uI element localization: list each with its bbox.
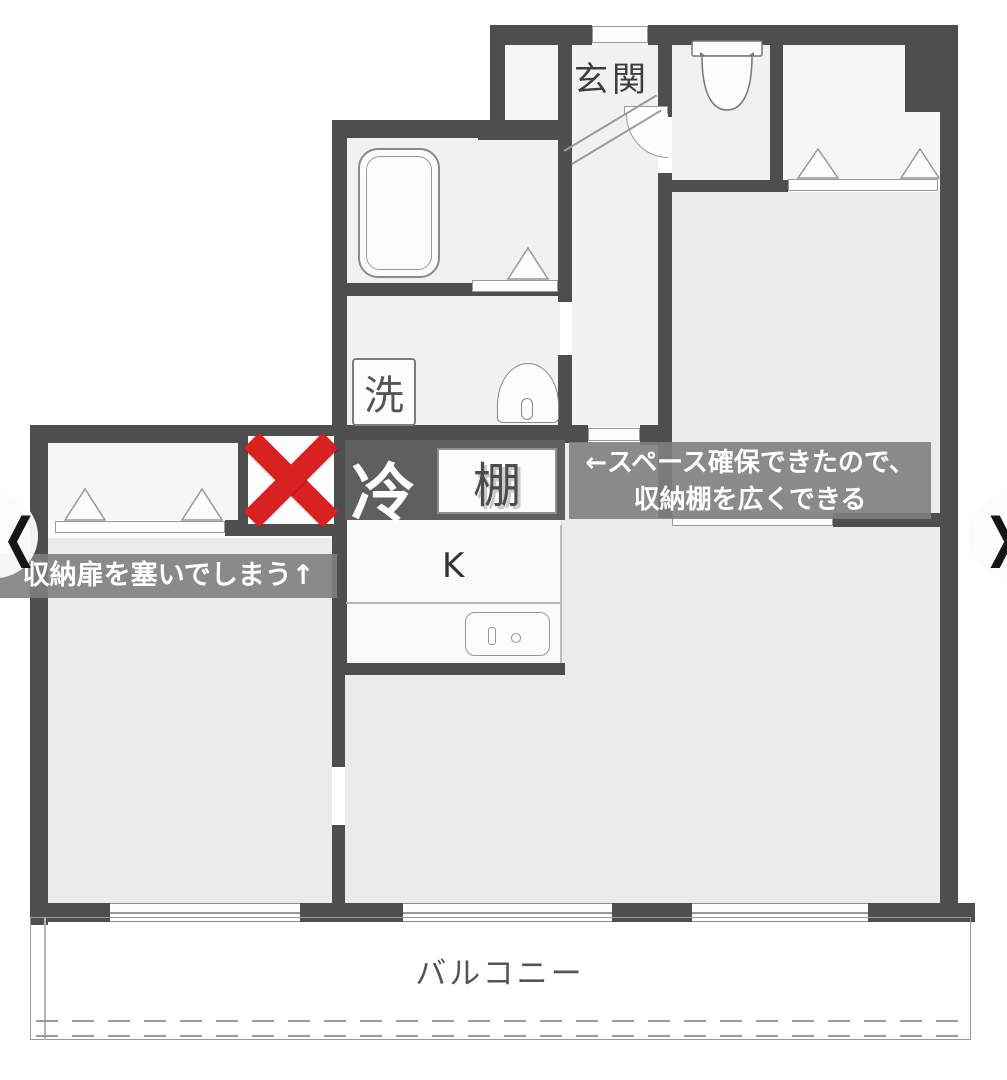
genkan-label: 玄関 — [574, 52, 650, 101]
kitchen-counter-line — [346, 602, 560, 604]
kitchen-edge-line — [560, 525, 562, 663]
fridge-label: 冷 — [351, 443, 415, 535]
balcony-label: バルコニー — [330, 948, 670, 993]
balcony-dashed-line — [36, 1020, 964, 1022]
x-mark-icon — [248, 436, 334, 524]
wall-segment — [558, 355, 572, 427]
shelf-label: 棚 — [473, 446, 521, 516]
wall-segment — [332, 825, 345, 903]
wall-segment — [770, 45, 783, 192]
fridge-box: 冷 棚 — [345, 440, 565, 520]
kitchen-sink-icon — [465, 612, 550, 656]
toilet-icon — [688, 38, 768, 116]
wall-segment — [332, 663, 565, 675]
shelf-box: 棚 — [437, 448, 557, 514]
balcony-dashed-line — [36, 1035, 964, 1037]
left-annotation: 収納扉を塞いでしまう↑ — [0, 554, 337, 598]
hall-door-track — [588, 428, 640, 441]
right-annotation-line2: 収納棚を広くできる — [569, 482, 931, 519]
next-arrow-button[interactable]: ❯ — [984, 512, 1007, 565]
entry-side-closet-floor — [505, 42, 558, 128]
door-swing-triangle — [506, 246, 550, 281]
wall-segment — [558, 140, 572, 302]
right-closet-door-track — [788, 179, 938, 191]
door-swing-triangle — [796, 147, 840, 180]
bathtub-icon — [358, 148, 440, 278]
wall-segment — [658, 180, 770, 192]
door-swing-triangle — [180, 487, 224, 522]
kitchen-label: K — [442, 546, 464, 586]
right-annotation-line1: ←スペース確保できたので、 — [569, 445, 931, 482]
wall-segment — [490, 25, 592, 45]
right-annotation: ←スペース確保できたので、 収納棚を広くできる — [569, 442, 931, 519]
floorplan-viewer: 洗 冷 棚 玄関 K バルコニー 収納扉を塞いでしまう↑ ←スペース確保できたの… — [0, 0, 1007, 1080]
washer-box: 洗 — [352, 358, 416, 426]
prev-arrow-button[interactable]: ❮ — [2, 512, 37, 565]
bath-door-track — [472, 280, 558, 292]
door-swing-triangle — [63, 487, 107, 522]
left-annotation-text: 収納扉を塞いでしまう↑ — [23, 560, 315, 591]
left-closet-door-track — [55, 521, 225, 533]
wall-left-outer — [30, 425, 48, 925]
kitchen-knob — [511, 633, 521, 643]
wall-segment — [332, 675, 345, 767]
front-door — [592, 26, 648, 43]
sink-faucet — [521, 398, 533, 420]
kitchen-faucet — [488, 627, 496, 645]
washer-label: 洗 — [364, 363, 404, 421]
wall-segment — [332, 120, 347, 425]
door-swing-triangle — [899, 147, 941, 180]
wall-right-outer — [940, 25, 958, 917]
wall-segment — [770, 180, 788, 192]
wall-segment — [332, 120, 572, 138]
